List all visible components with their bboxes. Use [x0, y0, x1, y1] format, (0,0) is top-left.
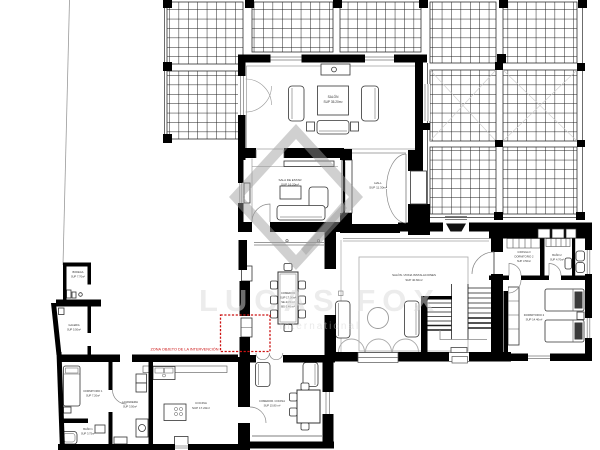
svg-text:SUP 5.50m²: SUP 5.50m²	[67, 328, 81, 332]
svg-text:SUP 16.20m²: SUP 16.20m²	[281, 183, 299, 187]
svg-text:international: international	[280, 321, 360, 332]
svg-text:SUP 35.20m²: SUP 35.20m²	[323, 100, 342, 104]
svg-text:SUP 14.40m²: SUP 14.40m²	[526, 318, 543, 322]
svg-text:SUP 11.30m²: SUP 11.30m²	[369, 186, 387, 190]
svg-text:GALERIA: GALERIA	[68, 323, 80, 327]
svg-text:COCINA: COCINA	[195, 401, 207, 405]
svg-text:ZONA OBJETO DE LA INTERVENCIÓN: ZONA OBJETO DE LA INTERVENCIÓN	[150, 347, 218, 352]
svg-text:HALL: HALL	[374, 181, 382, 185]
svg-text:LAVANDERIA: LAVANDERIA	[122, 400, 138, 404]
svg-text:SUP 3.75m²: SUP 3.75m²	[81, 432, 95, 436]
svg-text:C/PASILLO: C/PASILLO	[517, 250, 530, 254]
svg-text:SALA DE ESTAR: SALA DE ESTAR	[278, 178, 302, 182]
svg-text:SUP 7.20m²: SUP 7.20m²	[86, 394, 100, 398]
svg-text:LUCAS FOX: LUCAS FOX	[199, 283, 441, 318]
svg-text:SALÓN: SALÓN	[328, 94, 340, 99]
svg-text:SUP 7.70m²: SUP 7.70m²	[71, 275, 85, 279]
svg-text:SUP 3.50m²: SUP 3.50m²	[517, 259, 531, 263]
svg-text:SUP 15.80 m²: SUP 15.80 m²	[264, 404, 281, 408]
svg-text:BODEGA: BODEGA	[72, 270, 83, 274]
svg-text:SUP 40.60m²: SUP 40.60m²	[405, 278, 422, 282]
svg-text:COMEDOR. COCINA: COMEDOR. COCINA	[259, 399, 285, 403]
svg-text:DORMITORIO 1: DORMITORIO 1	[84, 389, 104, 393]
svg-text:DORMITORIO 2: DORMITORIO 2	[524, 313, 545, 317]
svg-text:SUP 3.50m²: SUP 3.50m²	[123, 405, 137, 409]
svg-text:SALÓN / ZONA INSTALACIONES: SALÓN / ZONA INSTALACIONES	[392, 272, 436, 277]
svg-text:SUP 17.20m²: SUP 17.20m²	[192, 406, 210, 410]
svg-text:SUP 4.70m²: SUP 4.70m²	[550, 258, 564, 262]
svg-text:DORMITORIO 2: DORMITORIO 2	[515, 255, 535, 259]
